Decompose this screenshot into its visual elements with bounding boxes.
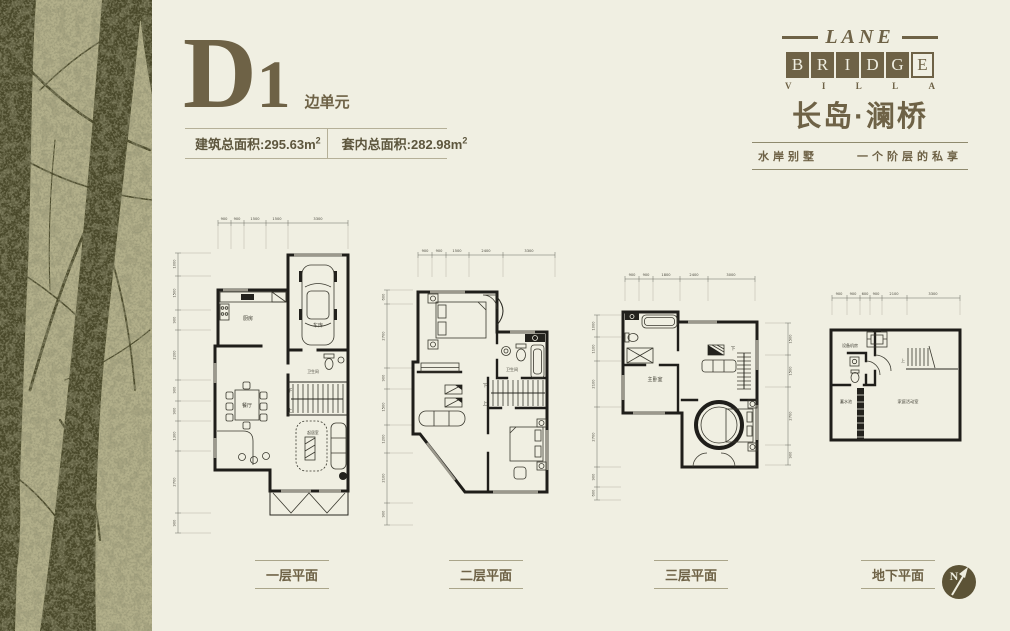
dimension-chain-top: 900 900 1800 2400 3000 [625, 273, 755, 301]
pier-wall [857, 388, 864, 440]
lane-dash-right [902, 36, 938, 39]
floorplan-level1: 900 900 1500 1500 3300 1000 1500 900 220… [163, 203, 363, 555]
room-label-master: 主卧室 [647, 376, 662, 383]
dim-label: 900 [173, 316, 177, 324]
dim-label: 600 [382, 293, 386, 301]
bridge-wordmark: B R I D G E [752, 52, 968, 78]
dim-label: 1500 [452, 249, 462, 253]
bridge-letter-box: B [786, 52, 809, 78]
villa-wordmark: V I L L A [785, 81, 935, 91]
dim-label: 900 [422, 249, 430, 253]
round-bedroom [696, 400, 757, 451]
dim-label: 1500 [789, 366, 793, 376]
dim-label: 900 [850, 292, 858, 296]
lane-wordmark: LANE [752, 26, 968, 49]
room-label-living: 起居室 [307, 430, 319, 435]
bridge-letter-box: E [911, 52, 934, 78]
floorplan-caption-level1: 一层平面 [255, 560, 329, 589]
dim-label: 900 [789, 451, 793, 459]
dim-label: 900 [173, 519, 177, 527]
bath-fixtures [625, 313, 677, 363]
room-label-family: 家庭活动室 [898, 398, 919, 405]
dim-label: 2100 [889, 292, 899, 296]
stair-up-label: 上 [901, 357, 905, 363]
dim-label: 2700 [173, 477, 177, 487]
sofa-icon [702, 360, 736, 372]
dim-label: 2700 [789, 411, 793, 421]
dim-label: 900 [221, 217, 229, 221]
tree-photo-sidebar [0, 0, 152, 631]
dimension-chain-top: 900 900 1500 1500 3300 [218, 217, 348, 249]
floorplan-caption-basement: 地下平面 [861, 560, 935, 589]
boiler-icon [867, 329, 887, 347]
dimension-chain-left: 600 2700 900 1500 1200 2100 900 [382, 290, 414, 525]
walls [413, 292, 547, 492]
dim-label: 1800 [661, 273, 671, 277]
dim-label: 1500 [272, 217, 282, 221]
area-stats-bar: 建筑总面积:295.63m2 套内总面积:282.98m2 [185, 128, 447, 159]
sofa-icon [419, 411, 465, 426]
living-room-fixtures [296, 421, 347, 480]
floorplan-basement: 900 900 600 900 2100 3300 [820, 285, 1010, 455]
dimension-chain-left: 1000 1100 2100 2700 900 600 [592, 315, 622, 500]
brand-logo: LANE B R I D G E V I L L A 长岛·澜桥 水岸别墅 一个… [752, 26, 968, 170]
stairs-icon [491, 380, 545, 406]
floorplan-level3: 900 900 1800 2400 3000 1000 1100 2100 27… [585, 255, 800, 545]
interior-area: 套内总面积:282.98m2 [327, 129, 468, 158]
dim-label: 900 [836, 292, 844, 296]
dim-label: 2400 [481, 249, 491, 253]
tagline-right: 一个阶层的私享 [857, 148, 962, 164]
bar-counter-icon [217, 431, 270, 465]
lane-dash-left [782, 36, 818, 39]
dim-label: 900 [643, 273, 651, 277]
room-label-kitchen: 厨房 [243, 315, 253, 322]
unit-number: 1 [257, 46, 291, 122]
dim-label: 900 [173, 407, 177, 415]
dim-label: 3000 [726, 273, 736, 277]
room-label-cistern: 蓄水池 [840, 398, 852, 404]
stairs-icon [906, 346, 958, 369]
dimension-chain-top: 900 900 1500 2400 3300 [418, 249, 555, 277]
brand-tagline: 水岸别墅 一个阶层的私享 [752, 142, 968, 170]
room-label-bath: 卫生间 [506, 366, 518, 372]
chinese-brand-name: 长岛·澜桥 [752, 93, 968, 135]
dim-label: 1300 [173, 431, 177, 441]
dim-label: 1500 [173, 288, 177, 298]
dim-label: 1000 [592, 321, 596, 331]
north-compass-icon: N [936, 560, 982, 606]
dim-label: 3300 [928, 292, 938, 296]
floorplan-level2: 900 900 1500 2400 3300 600 2700 900 1500… [375, 235, 575, 535]
bed-icon [428, 294, 486, 349]
dim-label: 900 [873, 292, 881, 296]
french-door-arcs [693, 453, 735, 467]
dim-label: 600 [592, 489, 596, 497]
dim-label: 900 [592, 473, 596, 481]
stair-up-label: 上 [483, 400, 488, 406]
stair-down-label: 下 [731, 346, 736, 352]
stairs-icon [737, 353, 751, 389]
north-letter: N [950, 569, 959, 583]
tv-icon [708, 345, 724, 355]
dim-label: 2200 [173, 350, 177, 360]
room-label-garage: 车库 [313, 322, 323, 329]
dim-label: 1100 [592, 344, 596, 354]
lane-text: LANE [825, 26, 894, 49]
floorplan-caption-level3: 三层平面 [654, 560, 728, 589]
dim-label: 2400 [689, 273, 699, 277]
dim-label: 3300 [524, 249, 534, 253]
unit-type-label: 边单元 [305, 94, 350, 111]
dim-label: 900 [173, 386, 177, 394]
wc-fixtures [850, 357, 859, 383]
dim-label: 1200 [382, 434, 386, 444]
dimension-chain-right: 1500 1500 2700 900 [765, 323, 793, 465]
wardrobe-icon [421, 363, 462, 407]
gross-area: 建筑总面积:295.63m2 [185, 129, 321, 158]
tagline-left: 水岸别墅 [758, 148, 818, 164]
dimension-chain-left: 1000 1500 900 2200 900 900 1300 2700 900 [173, 253, 212, 533]
brochure-page: D1边单元 建筑总面积:295.63m2 套内总面积:282.98m2 LANE… [0, 0, 1010, 631]
dimension-chain-top: 900 900 600 900 2100 3300 [832, 292, 960, 315]
door-arcs [866, 355, 891, 375]
dim-label: 900 [234, 217, 242, 221]
dim-label: 2700 [592, 432, 596, 442]
room-label-bath: 卫生间 [307, 369, 319, 374]
dim-label: 2100 [592, 379, 596, 389]
dim-label: 900 [629, 273, 637, 277]
walls [623, 312, 757, 467]
dim-label: 2100 [382, 473, 386, 483]
bridge-letter-box: D [861, 52, 884, 78]
bed-icon [510, 419, 546, 479]
floorplan-caption-level2: 二层平面 [449, 560, 523, 589]
dim-label: 900 [436, 249, 444, 253]
dim-label: 900 [382, 374, 386, 382]
dim-label: 3300 [313, 217, 323, 221]
dim-label: 1500 [250, 217, 260, 221]
dim-label: 900 [382, 510, 386, 518]
bridge-letter-box: G [886, 52, 909, 78]
dim-label: 600 [862, 292, 870, 296]
dim-label: 1000 [173, 259, 177, 269]
dim-label: 1500 [382, 402, 386, 412]
bridge-letter-box: R [811, 52, 834, 78]
walls [215, 255, 348, 491]
car-icon [299, 265, 337, 345]
dim-label: 1500 [789, 334, 793, 344]
porch [270, 491, 348, 515]
stairs-icon [291, 384, 343, 413]
unit-title: D1边单元 [183, 20, 350, 127]
unit-letter: D [183, 17, 257, 130]
dim-label: 2700 [382, 331, 386, 341]
bridge-letter-box: I [836, 52, 859, 78]
toilet-icon [324, 354, 344, 370]
stair-up-label: 上 [288, 407, 293, 413]
room-label-dining: 餐厅 [242, 402, 252, 409]
room-label-equipment: 设备机房 [842, 342, 858, 348]
